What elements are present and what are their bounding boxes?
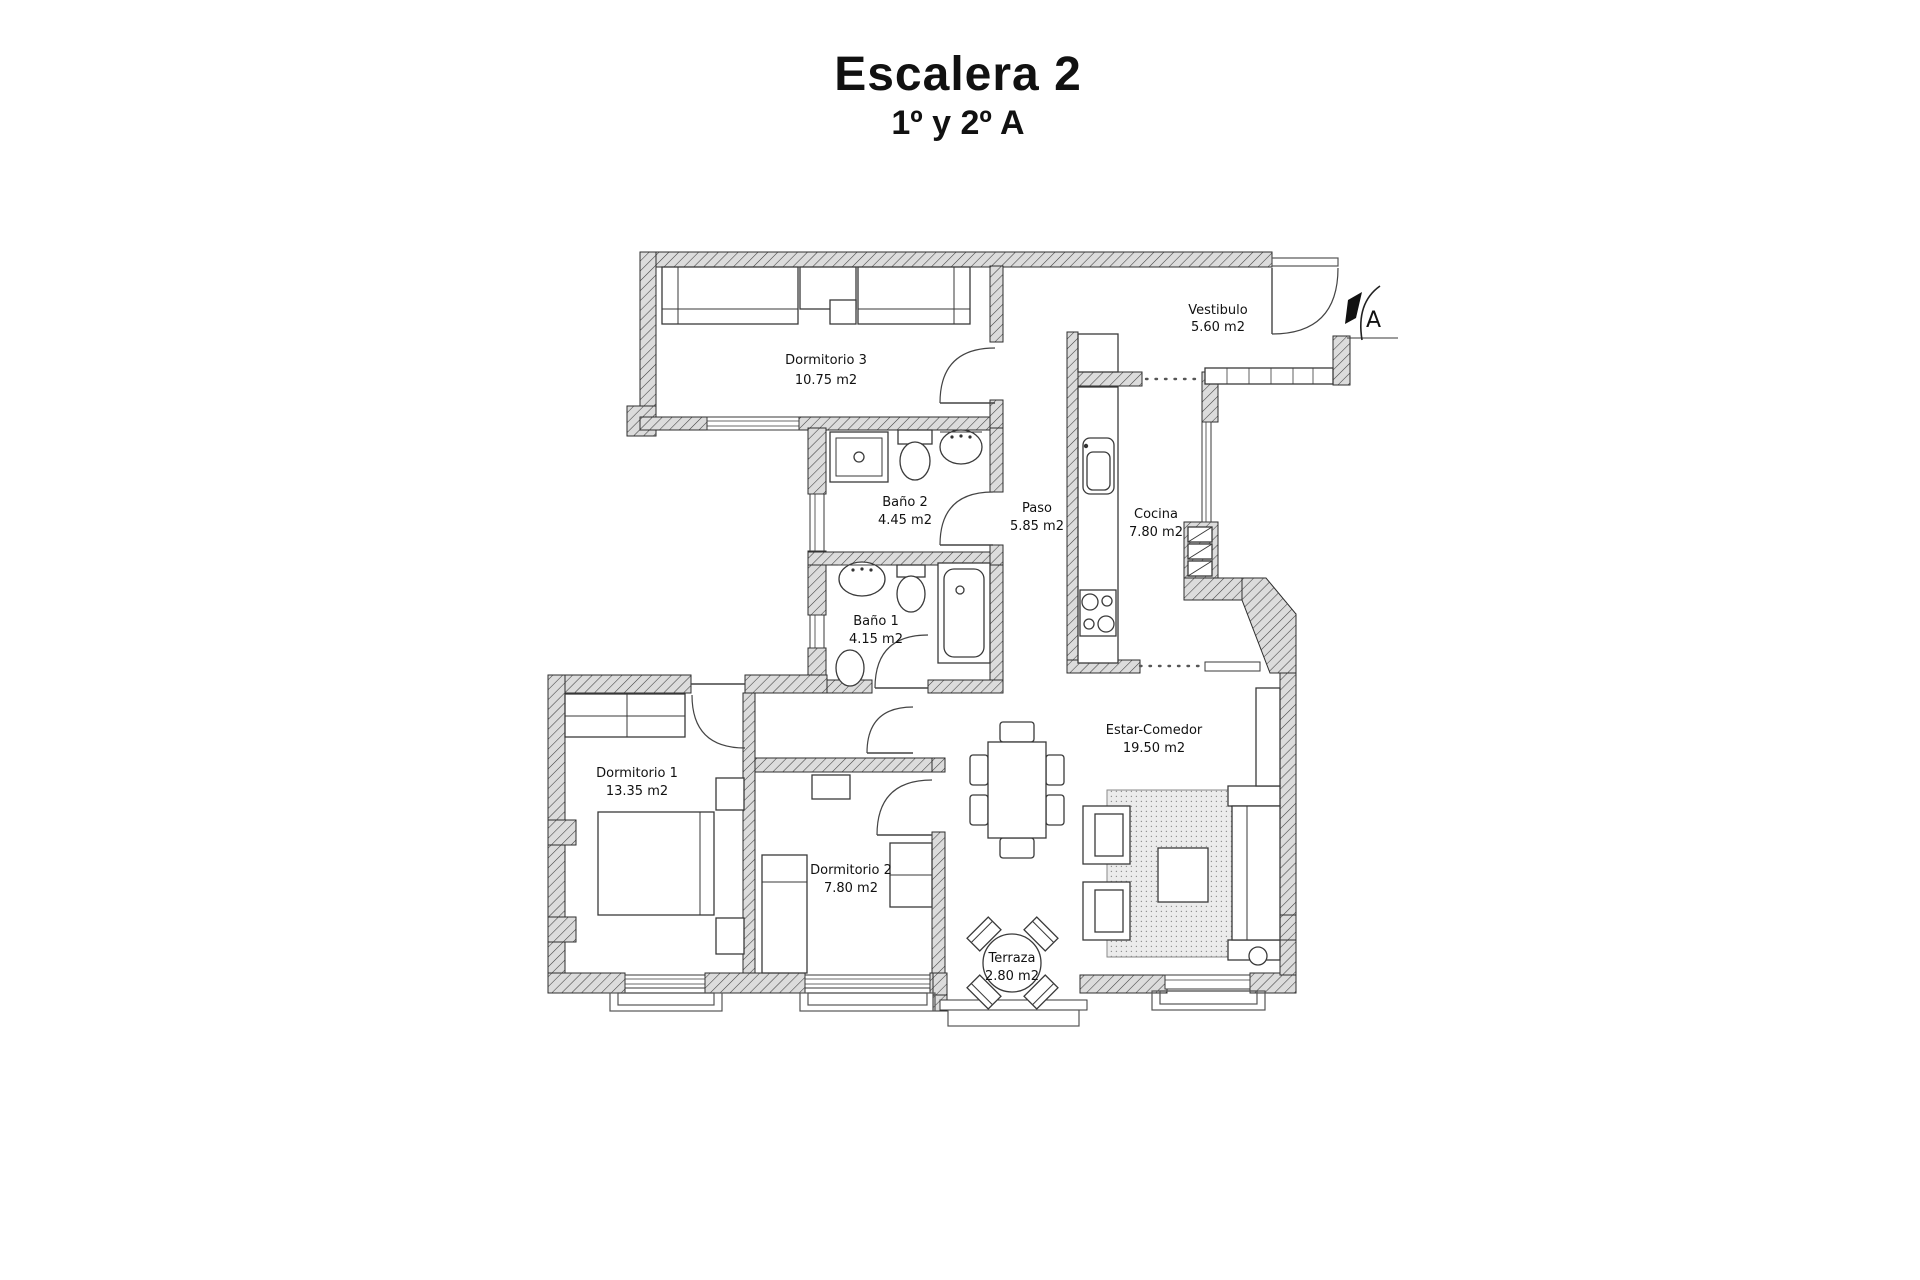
room-area: 4.45 m2 [878, 513, 932, 528]
dormitorio3-furniture [662, 267, 970, 324]
room-area: 5.85 m2 [1010, 519, 1064, 534]
toilet-bano1 [897, 565, 925, 612]
kitchen-sink [1083, 438, 1114, 494]
room-label-vestibulo: Vestibulo 5.60 m2 [1188, 303, 1247, 335]
side-table [1249, 947, 1267, 965]
entrance-arrow-icon [1345, 292, 1362, 324]
room-name: Terraza [988, 951, 1036, 966]
window-bano1 [810, 615, 824, 648]
window-dormitorio1 [610, 975, 722, 1011]
room-name: Dormitorio 1 [596, 766, 678, 781]
window-cocina-low [1205, 662, 1260, 671]
wardrobe-dorm2 [890, 843, 932, 907]
toilet-bano2 [898, 430, 932, 480]
room-label-cocina: Cocina 7.80 m2 [1129, 507, 1183, 540]
bed-single-dorm2 [762, 855, 807, 973]
window-dormitorio3 [707, 417, 799, 430]
room-area: 4.15 m2 [849, 632, 903, 647]
room-name: Baño 1 [853, 614, 898, 629]
room-label-dormitorio2: Dormitorio 2 7.80 m2 [810, 863, 892, 896]
window-cocina [1202, 422, 1211, 522]
vestibulo-closet [1205, 368, 1333, 384]
bathtub [938, 563, 990, 663]
door-dormitorio1 [691, 684, 745, 748]
door-entrance [1272, 268, 1338, 334]
room-area: 10.75 m2 [795, 373, 857, 388]
terraza-railing [940, 1000, 1087, 1026]
nightstand-dorm1-b [716, 918, 744, 954]
room-name: Vestibulo [1188, 303, 1247, 318]
kitchen-cabinet [1078, 334, 1118, 372]
nightstand-dorm1-a [716, 778, 744, 810]
sink-bano1 [838, 562, 886, 596]
bidet [836, 650, 864, 686]
armchair-1 [1083, 806, 1130, 864]
sofa [1228, 786, 1280, 960]
pantry-shelves [1188, 527, 1212, 576]
shelf-column [1256, 688, 1280, 786]
bed-single-1 [662, 267, 798, 324]
door-bano2 [940, 492, 993, 545]
floorplan-page: Escalera 2 1º y 2º A [0, 0, 1920, 1280]
door-hall [867, 707, 913, 753]
room-name: Dormitorio 3 [785, 353, 867, 368]
room-label-dormitorio1: Dormitorio 1 13.35 m2 [596, 766, 678, 799]
room-label-bano1: Baño 1 4.15 m2 [849, 614, 903, 647]
sink-bano2 [940, 430, 982, 464]
wardrobe-dorm1 [565, 694, 685, 737]
entrance-threshold [1272, 258, 1338, 266]
armchair-2 [1083, 882, 1130, 940]
window-bano2 [810, 494, 824, 551]
dormitorio1-furniture [565, 694, 744, 954]
room-name: Paso [1022, 501, 1052, 516]
room-name: Baño 2 [882, 495, 927, 510]
room-area: 13.35 m2 [606, 784, 668, 799]
room-label-bano2: Baño 2 4.45 m2 [878, 495, 932, 528]
room-name: Cocina [1134, 507, 1178, 522]
room-area: 2.80 m2 [985, 969, 1039, 984]
entrance-letter: A [1366, 308, 1381, 333]
room-label-dormitorio3: Dormitorio 3 10.75 m2 [785, 353, 867, 388]
window-dormitorio2 [800, 975, 935, 1011]
bano2-fixtures [830, 430, 982, 482]
room-label-estar-comedor: Estar-Comedor 19.50 m2 [1106, 723, 1203, 756]
floorplan-drawing: A [0, 0, 1920, 1280]
room-name: Estar-Comedor [1106, 723, 1203, 738]
room-name: Dormitorio 2 [810, 863, 892, 878]
bed-single-2 [858, 267, 970, 324]
room-label-paso: Paso 5.85 m2 [1010, 501, 1064, 534]
window-estar [1152, 975, 1265, 1010]
shower [830, 432, 888, 482]
room-area: 7.80 m2 [1129, 525, 1183, 540]
room-area: 7.80 m2 [824, 881, 878, 896]
dining-table [970, 722, 1064, 858]
room-area: 5.60 m2 [1191, 320, 1245, 335]
door-dormitorio3 [940, 348, 995, 403]
door-dormitorio2 [877, 780, 932, 835]
nightstand-dorm2 [812, 775, 850, 799]
cooktop [1080, 590, 1116, 636]
coffee-table [1158, 848, 1208, 902]
entrance-marker: A [1345, 286, 1398, 340]
bed-double [598, 812, 714, 915]
room-area: 19.50 m2 [1123, 741, 1185, 756]
stool [830, 300, 856, 324]
